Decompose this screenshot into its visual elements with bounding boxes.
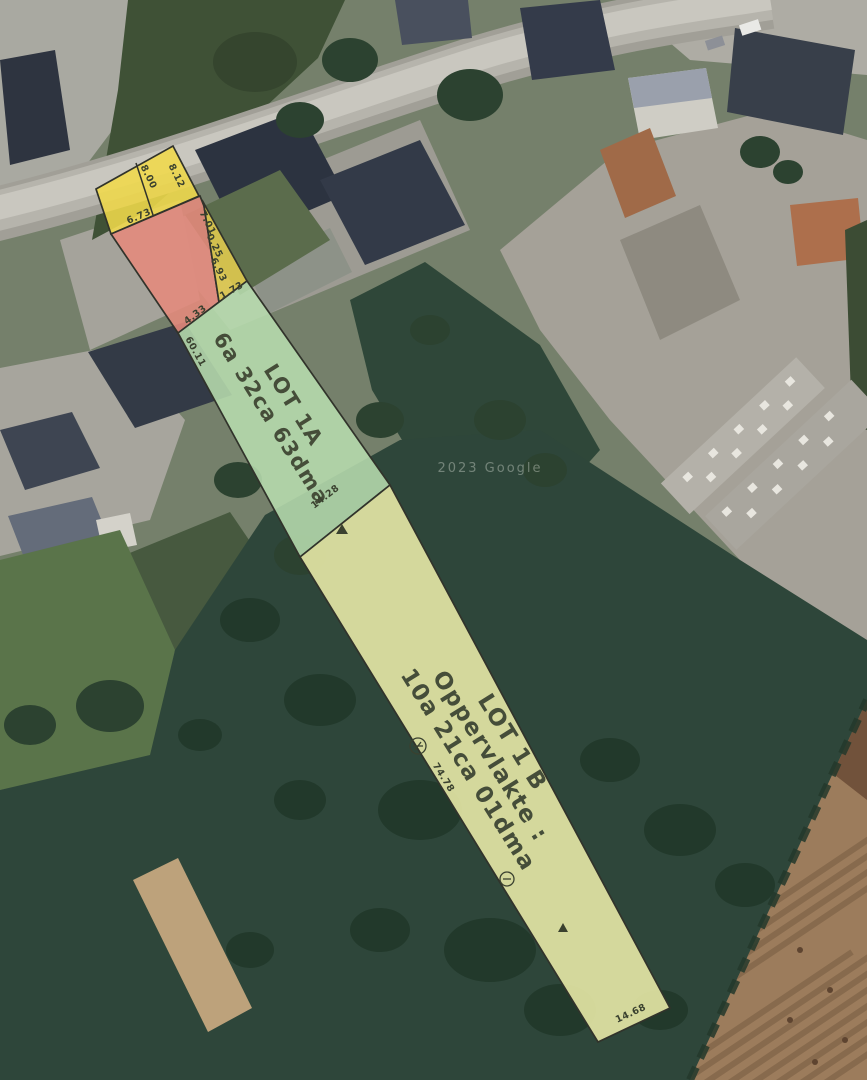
aerial-photo-background: 2023 Google [0, 0, 867, 1080]
house-roof [395, 0, 472, 45]
aerial-parcel-plan: 2023 Google LOT 1A 6a 32ca 63dma LOT 1 B… [0, 0, 867, 1080]
google-watermark: 2023 Google [437, 461, 542, 476]
house-roof [520, 0, 615, 80]
